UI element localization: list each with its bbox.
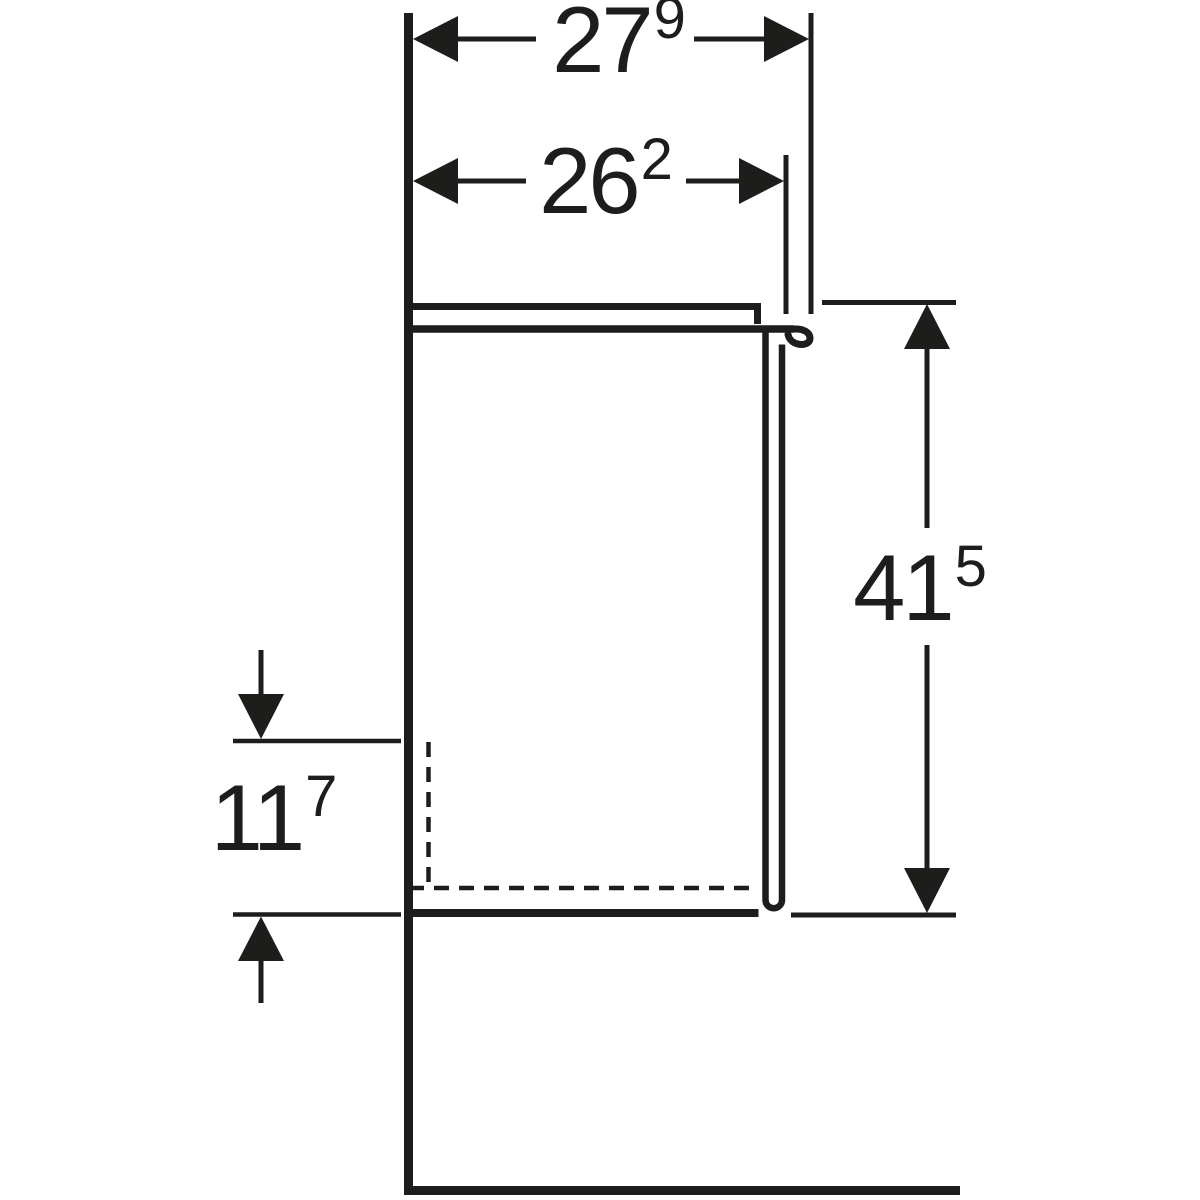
dimension-value: 41 bbox=[853, 541, 952, 635]
door-panel-outline bbox=[766, 333, 783, 909]
dimension-value: 11 bbox=[211, 771, 303, 865]
dimension-label-recess-height: 11 7 bbox=[211, 771, 338, 865]
dimension-value: 26 bbox=[539, 134, 638, 228]
dimension-superscript: 2 bbox=[641, 131, 673, 189]
dimension-superscript: 7 bbox=[305, 768, 337, 826]
drawing-canvas: 27 9 26 2 41 5 11 7 bbox=[0, 0, 1200, 1200]
dimension-label-overall-depth: 27 9 bbox=[552, 0, 686, 87]
overall-depth-arrow-right bbox=[764, 16, 809, 62]
dimension-label-overall-height: 41 5 bbox=[853, 541, 987, 635]
overall-height-arrow-bottom bbox=[904, 868, 950, 913]
dimension-label-body-depth: 26 2 bbox=[539, 134, 673, 228]
body-depth-arrow-right bbox=[739, 158, 784, 204]
overall-depth-arrow-left bbox=[413, 16, 458, 62]
dimension-superscript: 9 bbox=[654, 0, 686, 48]
cabinet-top-panel-outline bbox=[405, 307, 758, 325]
body-depth-arrow-left bbox=[413, 158, 458, 204]
recess-height-arrow-top bbox=[238, 694, 284, 739]
dimension-superscript: 5 bbox=[955, 538, 987, 596]
dimension-value: 27 bbox=[552, 0, 651, 87]
recess-height-arrow-bottom bbox=[238, 917, 284, 962]
overall-height-arrow-top bbox=[904, 304, 950, 349]
